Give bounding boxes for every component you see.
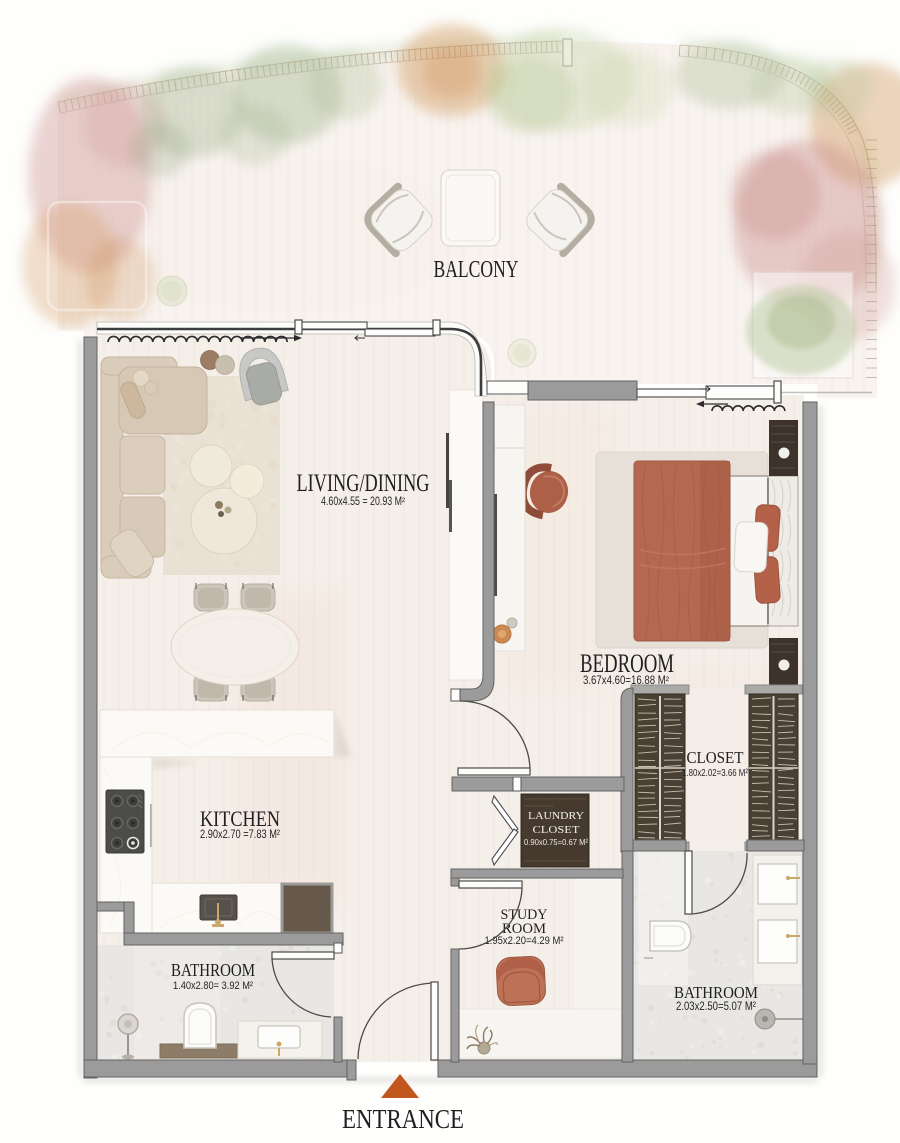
svg-text:LAUNDRY: LAUNDRY (528, 810, 584, 822)
svg-text:0.90x0.75=0.67 M²: 0.90x0.75=0.67 M² (524, 837, 588, 847)
svg-text:BALCONY: BALCONY (434, 257, 519, 283)
svg-text:CLOSET: CLOSET (687, 748, 745, 767)
svg-text:BEDROOM: BEDROOM (580, 649, 674, 678)
svg-text:4.60x4.55 = 20.93 M²: 4.60x4.55 = 20.93 M² (321, 496, 405, 508)
svg-text:2.03x2.50=5.07 M²: 2.03x2.50=5.07 M² (676, 999, 756, 1013)
svg-text:ENTRANCE: ENTRANCE (342, 1104, 464, 1134)
svg-text:1.40x2.80= 3.92 M²: 1.40x2.80= 3.92 M² (173, 980, 253, 992)
svg-text:BATHROOM: BATHROOM (171, 960, 255, 980)
svg-text:2.90x2.70 =7.83 M²: 2.90x2.70 =7.83 M² (200, 827, 280, 841)
svg-text:LIVING/DINING: LIVING/DINING (297, 470, 430, 497)
svg-text:CLOSET: CLOSET (533, 824, 580, 836)
svg-text:1.80x2.02=3.66 M²: 1.80x2.02=3.66 M² (682, 767, 748, 779)
